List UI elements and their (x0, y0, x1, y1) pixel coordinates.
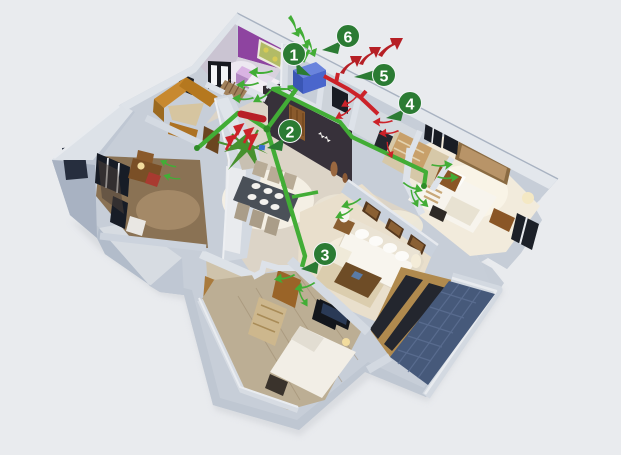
svg-text:1: 1 (290, 48, 299, 65)
svg-text:2: 2 (286, 125, 295, 142)
svg-text:4: 4 (406, 97, 415, 114)
svg-text:6: 6 (344, 30, 353, 47)
svg-text:5: 5 (380, 69, 389, 86)
svg-text:3: 3 (321, 248, 330, 265)
